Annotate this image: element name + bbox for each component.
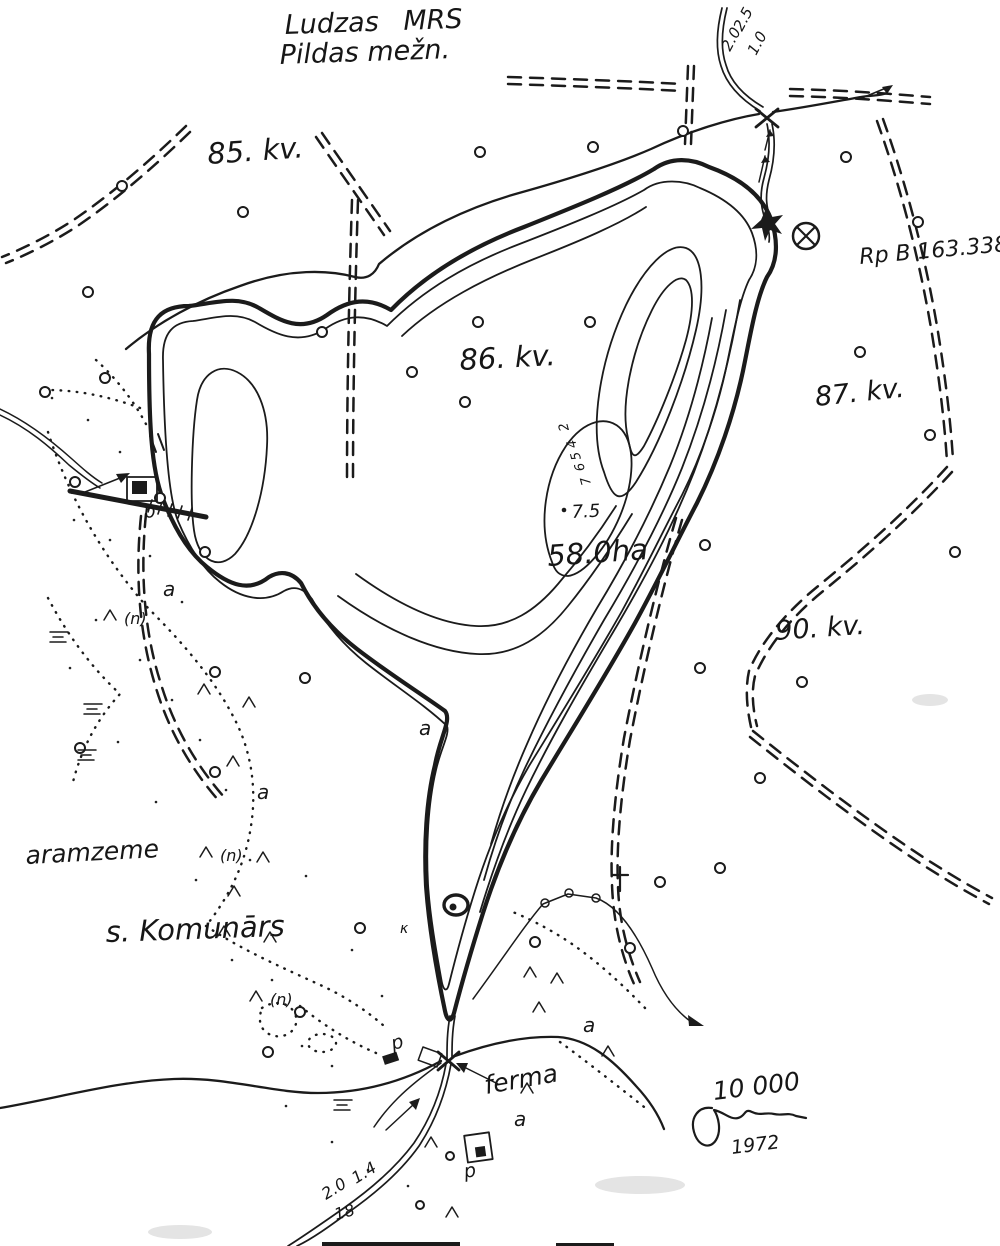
letter-a: a xyxy=(163,577,175,601)
contour-label-6: 6 xyxy=(572,461,589,473)
scan-edge-mark xyxy=(322,1242,460,1246)
pointer-arrow-icon xyxy=(80,473,130,494)
letter-a: a xyxy=(419,716,431,740)
flow-arrow-icon xyxy=(759,130,774,182)
ground-speckles xyxy=(51,397,410,1188)
lake-area-label: 58.0ha xyxy=(546,532,649,573)
stream-bottom-width-label: 2.0 xyxy=(318,1174,350,1204)
building-dam xyxy=(127,477,157,501)
scan-smudges xyxy=(148,694,948,1246)
depth-sounding-dot xyxy=(562,508,567,513)
lone-tree-icon xyxy=(751,206,783,241)
benchmark-label: Rp B 163.338 xyxy=(858,232,1000,270)
stream-bottom-second-label: 18 xyxy=(332,1200,357,1224)
letter-p: p xyxy=(142,500,157,523)
letter-p: p xyxy=(388,1030,406,1055)
letter-a: a xyxy=(583,1013,595,1037)
swamp-symbols xyxy=(50,632,352,1110)
letter-n: (n) xyxy=(220,846,243,865)
cross-icon xyxy=(612,867,628,891)
map-title-line2: Pildas mežn. xyxy=(279,34,450,71)
contour-label-2: 2 xyxy=(556,421,573,433)
quarter-90-label: 90. kv. xyxy=(774,610,865,647)
building-outline xyxy=(418,1047,442,1067)
quarter-85-label: 85. kv. xyxy=(206,130,304,171)
conifer-n-note: (n) xyxy=(250,990,293,1009)
dam-causeway xyxy=(70,491,206,517)
letter-kappa: κ xyxy=(400,921,409,937)
tree-circles xyxy=(40,126,960,1209)
stream-top-depth-label: 1.0 xyxy=(744,28,771,58)
mill-icon xyxy=(793,223,819,249)
quarter-86-label: 86. kv. xyxy=(459,338,557,377)
depth-sounding-label: 7.5 xyxy=(571,501,601,523)
letter-n: (n) xyxy=(124,609,147,628)
contour-label-5: 5 xyxy=(568,450,585,462)
map-canvas: Ludzas MRS Pildas mežn. 85. kv. 86. kv. … xyxy=(0,0,1000,1246)
lake-shoreline xyxy=(149,160,776,1019)
conifer-n-note: (n) xyxy=(104,609,147,628)
road-arrow-icon xyxy=(688,1015,704,1026)
year-label: 1972 xyxy=(730,1131,781,1159)
farm-label: ferma xyxy=(482,1058,560,1099)
scale-label: 10 000 xyxy=(711,1067,801,1106)
letter-a: a xyxy=(514,1107,526,1131)
pointer-arrow-icon xyxy=(386,1098,420,1130)
contour-label-7: 7 xyxy=(578,474,595,487)
letter-a: a xyxy=(257,780,269,804)
village-label: s. Komunārs xyxy=(105,909,285,949)
quarter-87-label: 87. kv. xyxy=(813,373,905,413)
island-icon xyxy=(444,895,468,915)
scanned-forest-lake-map: Ludzas MRS Pildas mežn. 85. kv. 86. kv. … xyxy=(0,0,1000,1246)
field-label: aramzeme xyxy=(25,834,160,870)
contour-label-4: 4 xyxy=(564,438,581,450)
conifer-n-note: (n) xyxy=(200,846,243,865)
west-ditch-and-dam xyxy=(0,409,206,520)
letter-p: p xyxy=(461,1159,478,1183)
letter-n: (n) xyxy=(270,990,293,1009)
building-farmstead xyxy=(464,1132,493,1162)
